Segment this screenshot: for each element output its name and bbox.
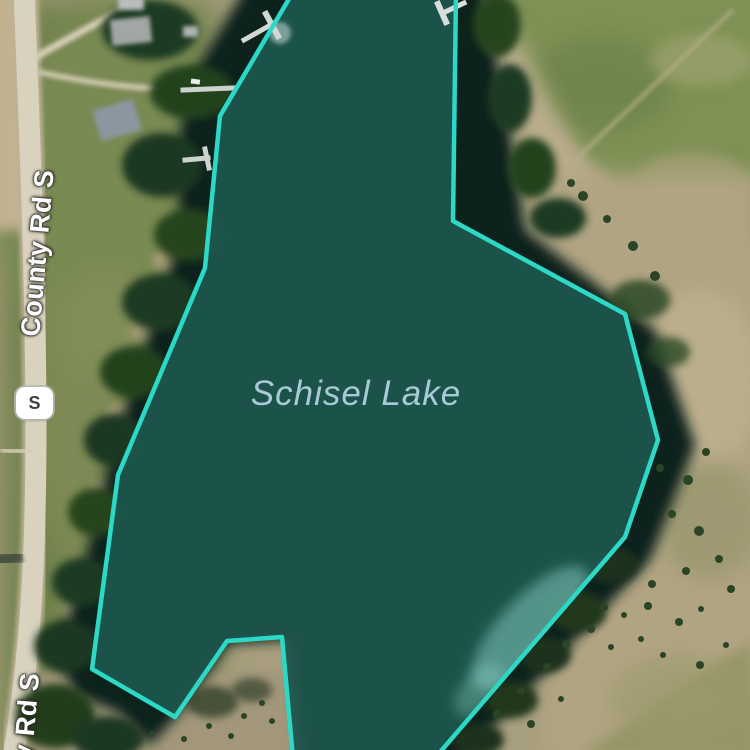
satellite-layer (0, 0, 750, 750)
route-shield-letter: S (28, 394, 40, 412)
dock-west-long (183, 88, 233, 90)
map-canvas[interactable]: Schisel Lake County Rd S y Rd S S (0, 0, 750, 750)
route-shield-s: S (16, 387, 53, 419)
